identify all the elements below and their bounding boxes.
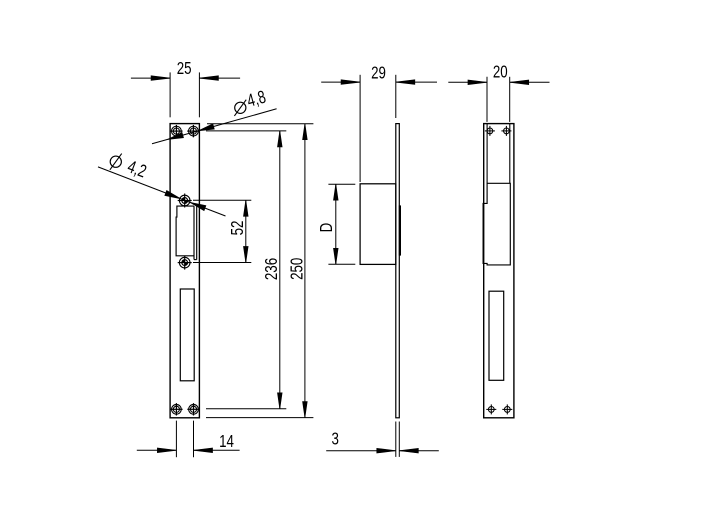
svg-text:29: 29: [371, 64, 386, 83]
svg-text:52: 52: [228, 221, 247, 236]
svg-text:25: 25: [177, 59, 192, 78]
svg-text:236: 236: [262, 258, 281, 280]
svg-text:250: 250: [288, 258, 307, 280]
svg-text:14: 14: [219, 432, 234, 451]
svg-text:D: D: [317, 223, 336, 233]
svg-text:4,8: 4,8: [245, 88, 268, 112]
svg-text:3: 3: [331, 430, 339, 449]
svg-text:20: 20: [493, 63, 508, 82]
